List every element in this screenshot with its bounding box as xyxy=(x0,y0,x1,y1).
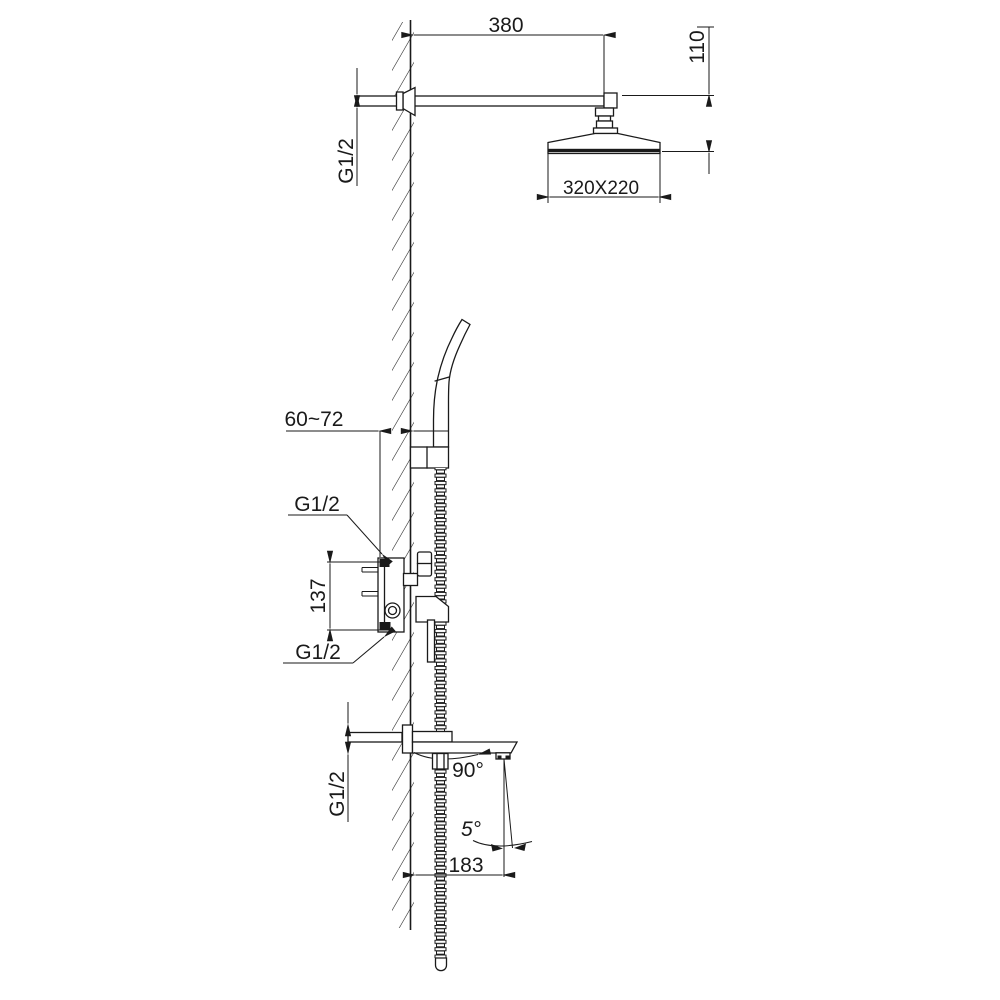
hose-lower-segment xyxy=(435,769,447,958)
technical-drawing-page: 380 110 G1/2 320X220 60~72 137 xyxy=(0,0,1000,1000)
spray-tilt-line xyxy=(504,759,513,848)
leader-inlet-bottom: G1/2 xyxy=(283,637,384,664)
leader-g12-top-label: G1/2 xyxy=(294,493,340,516)
leader-g12-bottom-label: G1/2 xyxy=(295,641,341,664)
spout-body xyxy=(413,742,518,753)
outlet-nub-mark-right xyxy=(506,756,510,760)
dim-spout-thread: G1/2 xyxy=(326,702,349,822)
arm-pipe xyxy=(357,96,604,106)
arm-wall-fitting xyxy=(397,92,404,110)
arm-end-block xyxy=(604,93,617,108)
head-ball-joint xyxy=(597,121,613,128)
spout-supply-pipe xyxy=(348,733,402,743)
dim-arm-length: 380 xyxy=(414,14,604,93)
dim-valve-depth: 60~72 xyxy=(285,408,449,557)
head-connector-nut xyxy=(596,108,614,116)
valve-supply-stub-top xyxy=(362,568,378,573)
wall-bracket xyxy=(411,447,449,468)
head-spray-face xyxy=(548,149,660,152)
leader-inlet-top: G1/2 xyxy=(288,493,382,554)
wall xyxy=(392,20,414,930)
outlet-nub-mark-left xyxy=(498,756,502,760)
dim-137-label: 137 xyxy=(307,578,330,613)
hand-shower xyxy=(411,320,471,469)
valve-top-inlet xyxy=(380,559,390,567)
dim-spout-reach: 183 xyxy=(416,854,503,877)
head-connector-stem xyxy=(599,116,611,121)
valve-body xyxy=(378,558,404,632)
hose-end-cap xyxy=(436,958,447,971)
valve-stem xyxy=(404,574,418,586)
dim-g12-spout-label: G1/2 xyxy=(326,771,349,817)
valve-elbow-strip xyxy=(428,620,435,662)
tub-spout xyxy=(348,725,517,769)
hand-shower-handle xyxy=(434,320,471,448)
dim-320-label: 320X220 xyxy=(563,178,639,199)
valve-supply-stub-bottom xyxy=(362,592,378,597)
hose-nut xyxy=(433,754,449,770)
shower-system-technical-drawing: 380 110 G1/2 320X220 60~72 137 xyxy=(0,0,1000,1000)
dim-90-label: 90° xyxy=(452,759,484,782)
dim-arm-thread: G1/2 xyxy=(335,68,358,186)
leader-g12-bottom-line xyxy=(353,637,384,663)
spout-hose-block xyxy=(413,732,453,743)
dim-6072-label: 60~72 xyxy=(285,408,344,431)
valve-outlet-port xyxy=(385,603,400,618)
dim-183-label: 183 xyxy=(448,854,483,877)
leader-g12-top-line xyxy=(347,515,382,554)
spout-wall-flange xyxy=(403,725,413,753)
dim-110-label: 110 xyxy=(686,30,709,63)
spray-arc-arrow-left xyxy=(491,844,503,852)
dim-spout-swivel: 90° xyxy=(452,759,484,782)
dim-5-label: 5° xyxy=(461,818,481,841)
dim-380-label: 380 xyxy=(488,14,523,37)
valve-bottom-inlet xyxy=(380,622,391,630)
shower-hose xyxy=(435,468,447,971)
shower-head xyxy=(548,108,660,154)
head-mount-nut xyxy=(594,128,618,134)
dim-g12-arm-label: G1/2 xyxy=(335,138,358,184)
